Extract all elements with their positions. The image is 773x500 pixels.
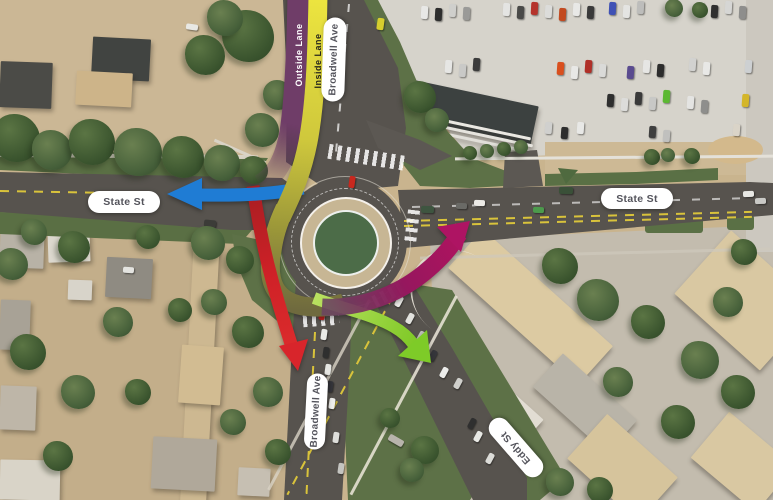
tree <box>661 405 695 439</box>
tree <box>692 2 708 18</box>
tree <box>514 140 528 154</box>
tree <box>43 441 73 471</box>
street-pill-broadwell-bottom: Broadwell Ave <box>304 373 329 450</box>
tree <box>61 375 95 409</box>
tree <box>400 458 424 482</box>
tree <box>263 80 293 110</box>
tree <box>603 367 633 397</box>
tree <box>125 379 151 405</box>
tree <box>114 128 162 176</box>
street-pill-state-west: State St <box>88 191 160 213</box>
tree <box>265 439 291 465</box>
trees-layer <box>0 0 773 500</box>
tree <box>204 145 240 181</box>
tree <box>463 146 477 160</box>
tree <box>542 248 578 284</box>
tree <box>713 287 743 317</box>
tree <box>10 334 46 370</box>
tree <box>185 35 225 75</box>
tree <box>721 375 755 409</box>
tree <box>577 279 619 321</box>
street-pill-broadwell-top: Broadwell Ave <box>321 17 347 102</box>
tree <box>380 408 400 428</box>
tree <box>245 113 279 147</box>
tree <box>226 246 254 274</box>
tree <box>661 148 675 162</box>
tree <box>681 341 719 379</box>
tree <box>587 477 613 500</box>
tree <box>191 226 225 260</box>
tree <box>425 108 449 132</box>
tree <box>168 298 192 322</box>
aerial-roundabout-map: Outside Lane Inside Lane Broadwell Ave S… <box>0 0 773 500</box>
outside-lane-label: Outside Lane <box>294 15 304 95</box>
street-pill-state-east: State St <box>601 188 673 209</box>
tree <box>232 316 264 348</box>
tree <box>684 148 700 164</box>
tree <box>103 307 133 337</box>
tree <box>253 377 283 407</box>
tree <box>240 156 268 184</box>
tree <box>21 219 47 245</box>
tree <box>201 289 227 315</box>
tree <box>665 0 683 17</box>
tree <box>58 231 90 263</box>
tree <box>220 409 246 435</box>
tree <box>546 468 574 496</box>
tree <box>731 239 757 265</box>
tree <box>644 149 660 165</box>
tree <box>0 248 28 280</box>
tree <box>480 144 494 158</box>
tree <box>497 142 511 156</box>
tree <box>32 130 72 170</box>
tree <box>136 225 160 249</box>
tree <box>162 136 204 178</box>
tree <box>69 119 115 165</box>
tree <box>631 305 665 339</box>
tree <box>207 0 243 36</box>
